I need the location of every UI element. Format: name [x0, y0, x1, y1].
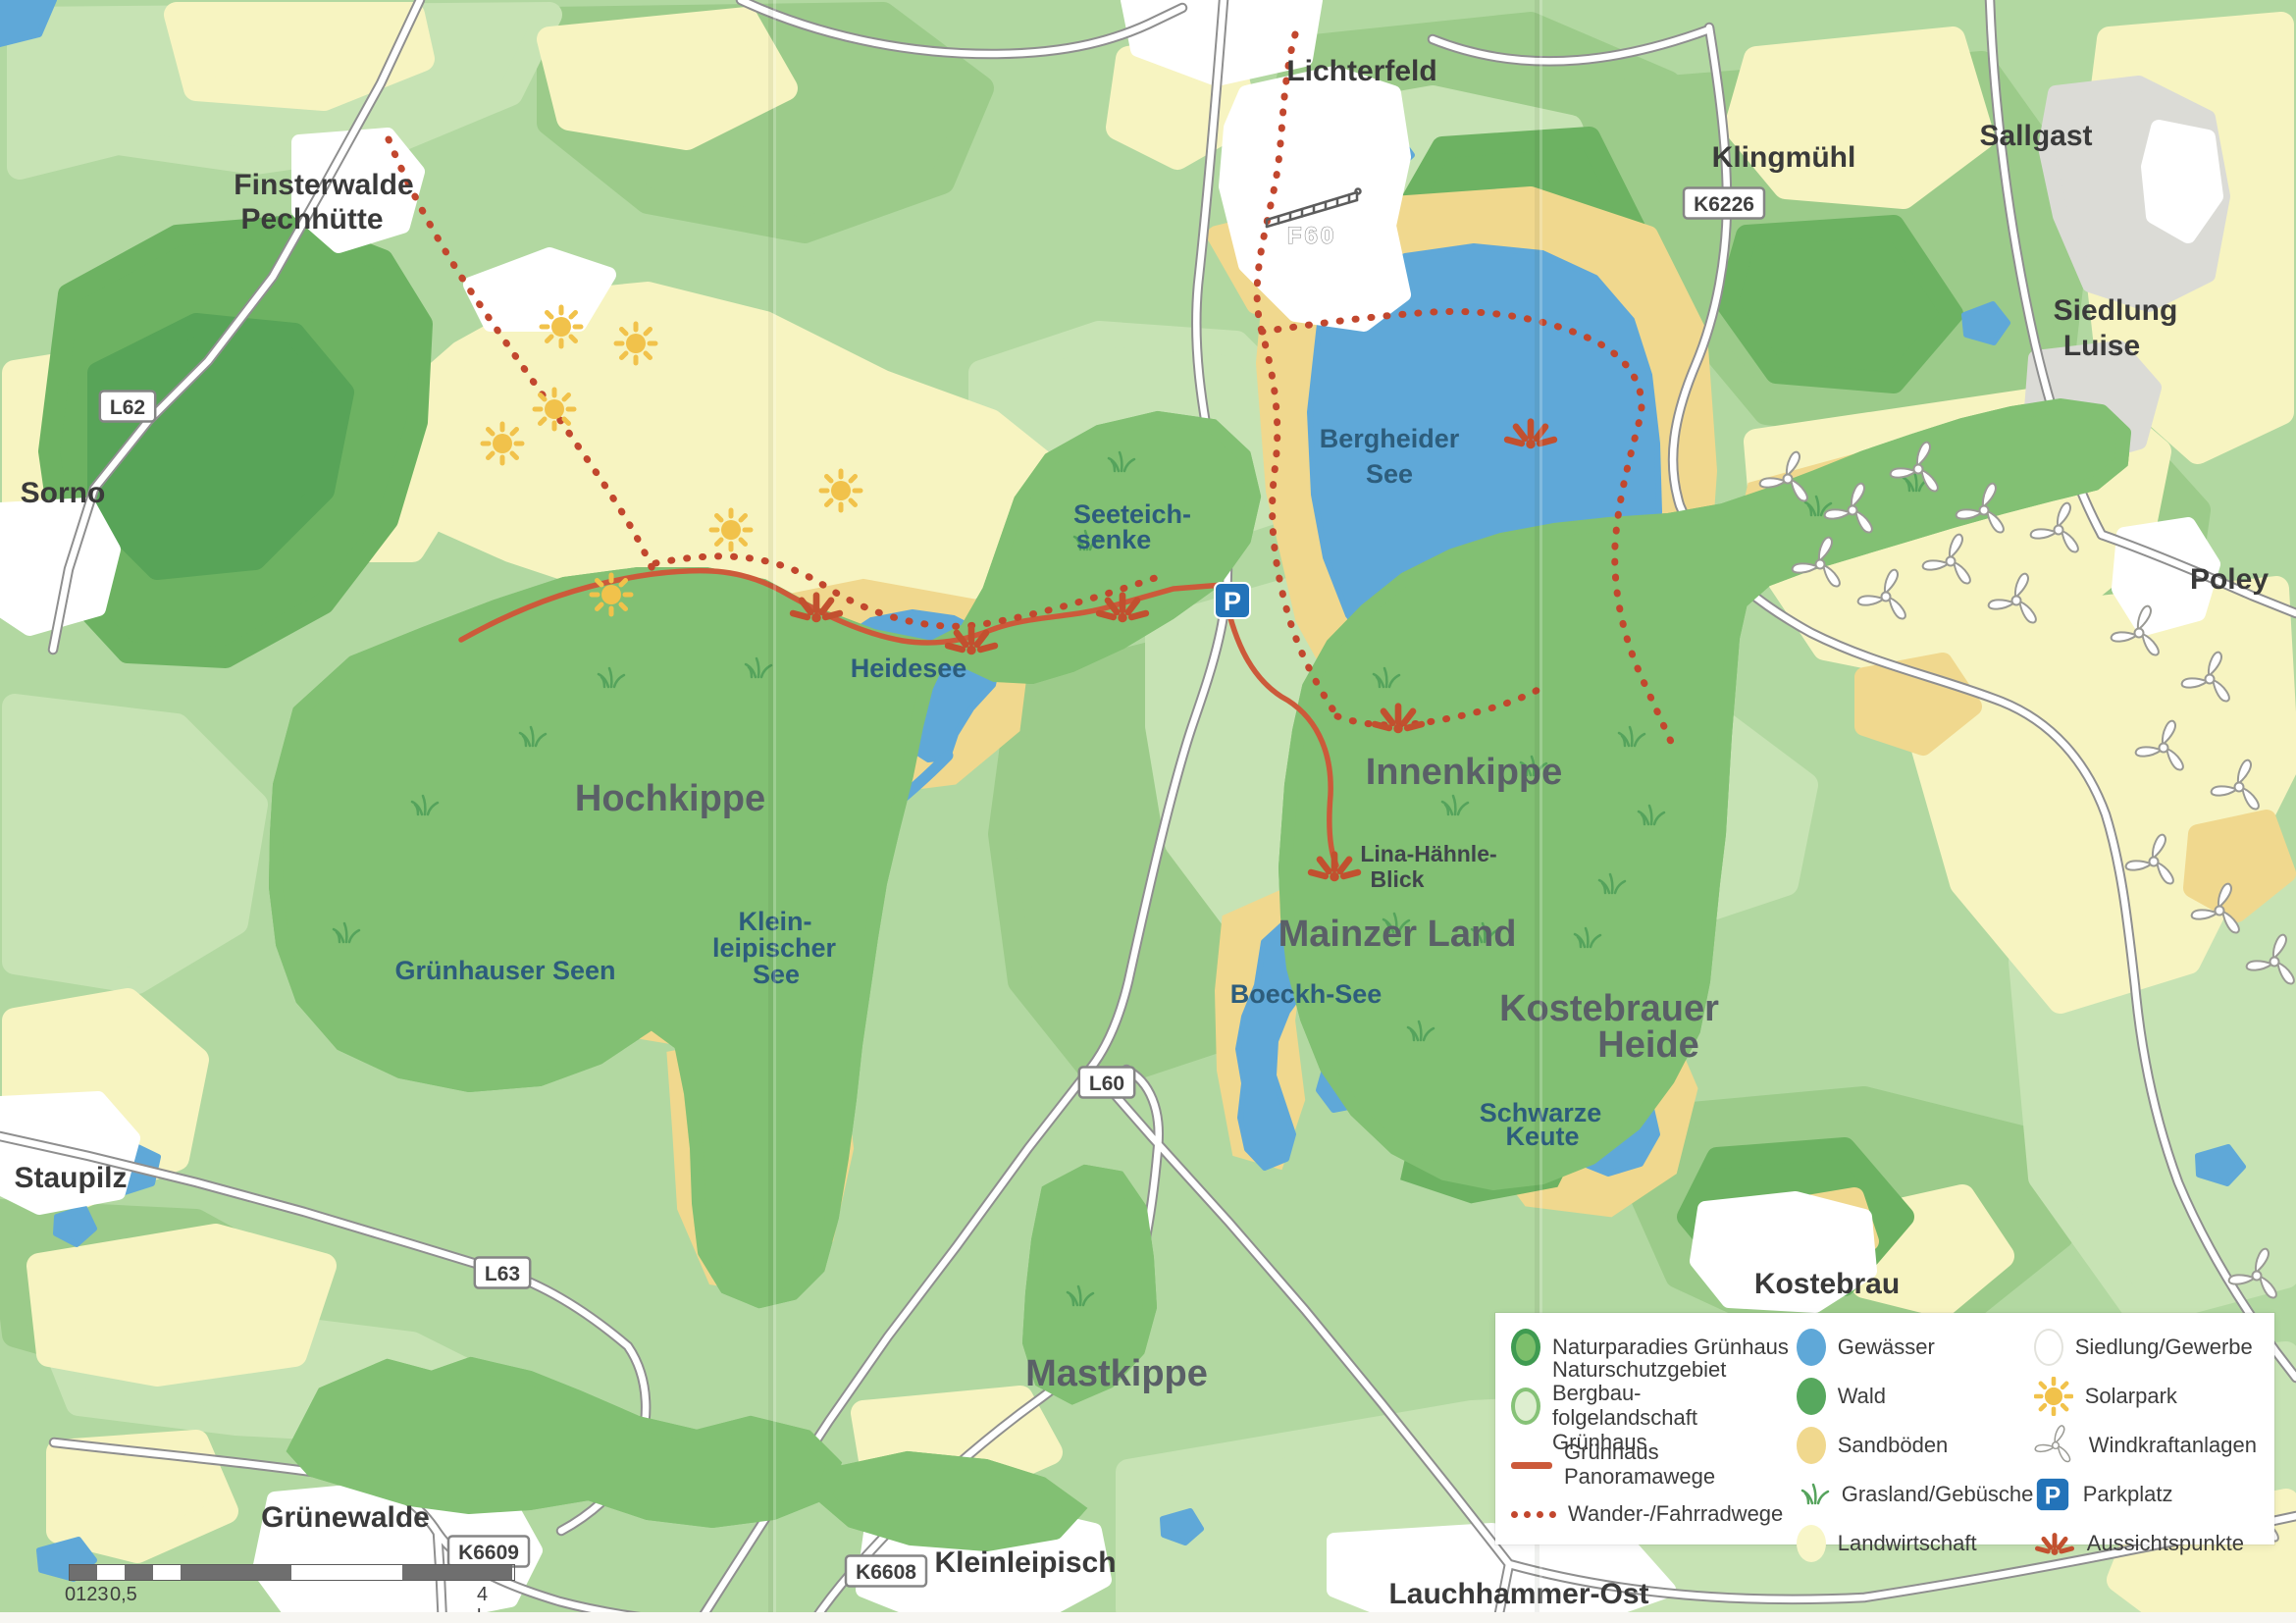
road-badge-l63: L63 [475, 1258, 530, 1288]
road-badge-k6608: K6608 [846, 1556, 926, 1587]
label-town-klingm-hl: Klingmühl [1712, 141, 1856, 174]
label-town-poley: Poley [2190, 563, 2269, 596]
legend-item-landwirtschaft: Landwirtschaft [1797, 1525, 2028, 1562]
label-town-sorno: Sorno [21, 477, 106, 509]
terrain-layer-shape [39, 1236, 324, 1374]
naturparadies-swatch-icon [1511, 1329, 1540, 1366]
map-canvas: PF60 L62K6226L60L63K6609K6608 Finsterwal… [0, 0, 2296, 1623]
parking-icon: P [2034, 1476, 2071, 1513]
legend-item-siedlung: Siedlung/Gewerbe [2034, 1329, 2267, 1366]
solar-park-icon [616, 324, 655, 363]
legend-label: Solarpark [2085, 1385, 2177, 1409]
farmland-swatch-icon [1797, 1525, 1826, 1562]
legend: Naturparadies Grünhaus Naturschutzgebiet… [1495, 1313, 2274, 1544]
label-water-bergheider: Bergheider [1320, 424, 1460, 453]
solar-park-icon [542, 307, 581, 346]
lakes-layer-shape [1964, 304, 2008, 342]
label-poi-blick: Blick [1371, 866, 1425, 892]
label-town-pechh-tte: Pechhütte [240, 203, 383, 236]
legend-item-solarpark: Solarpark [2034, 1378, 2267, 1415]
label-town-siedlung: Siedlung [2054, 294, 2178, 327]
road-badge-k6226: K6226 [1684, 188, 1764, 219]
legend-label: Grasland/Gebüsche [1842, 1483, 2034, 1507]
label-water-boeckh-see: Boeckh-See [1230, 979, 1383, 1009]
label-area-heide: Heide [1597, 1024, 1698, 1066]
road-badge-k6609-shape: K6609 [458, 1542, 519, 1564]
f60-landmark-icon-shape: F60 [1287, 223, 1336, 249]
sand-swatch-icon [1797, 1427, 1826, 1464]
solar-park-icon [592, 575, 631, 614]
label-town-kleinleipisch: Kleinleipisch [934, 1546, 1116, 1579]
solid-route-line-icon [1511, 1462, 1552, 1469]
terrain-layer-shape [549, 20, 785, 137]
scale-label-start: 0123 [65, 1584, 109, 1606]
settlement-layer-shape [2149, 128, 2216, 236]
legend-label: Sandböden [1838, 1434, 1949, 1458]
legend-label: Landwirtschaft [1838, 1532, 1977, 1556]
legend-item-wanderwege: Wander-/Fahrradwege [1511, 1495, 1791, 1533]
grass-icon [1797, 1478, 1830, 1511]
legend-column-1: Naturparadies Grünhaus Naturschutzgebiet… [1511, 1329, 1791, 1533]
scale-segment [181, 1565, 291, 1580]
wind-turbine-icon [2034, 1424, 2077, 1467]
label-area-kostebrauer: Kostebrauer [1499, 988, 1719, 1029]
solar-park-icon [2034, 1377, 2073, 1416]
label-town-sallgast: Sallgast [1979, 120, 2092, 152]
legend-item-gewaesser: Gewässer [1797, 1329, 2028, 1366]
legend-label: Wald [1838, 1385, 1886, 1409]
road-badge-l62-shape: L62 [110, 396, 145, 419]
label-area-innenkippe: Innenkippe [1366, 752, 1563, 793]
viewpoint-icon [2034, 1524, 2075, 1563]
label-water-gr-nhauser-seen: Grünhauser Seen [394, 956, 615, 985]
legend-column-2: Gewässer Wald Sandböden Grasland/Gebüsch… [1797, 1329, 2028, 1533]
label-town-staupilz: Staupilz [14, 1162, 127, 1194]
scale-label-half: 0,5 [110, 1584, 137, 1606]
paper-margin [0, 1612, 2296, 1623]
scale-segment [125, 1565, 153, 1580]
scale-segment [291, 1565, 402, 1580]
settlement-swatch-icon [2034, 1329, 2063, 1366]
road-badge-k6226-shape: K6226 [1694, 193, 1754, 216]
legend-item-parkplatz: P Parkplatz [2034, 1476, 2267, 1513]
road-badge-k6609: K6609 [448, 1537, 529, 1567]
legend-item-aussichtspunkte: Aussichtspunkte [2034, 1525, 2267, 1562]
svg-text:P: P [2045, 1484, 2061, 1510]
label-town-kostebrau: Kostebrau [1754, 1268, 1900, 1300]
scale-segment [402, 1565, 512, 1580]
legend-item-grasland: Grasland/Gebüsche [1797, 1476, 2028, 1513]
road-badge-l60-shape: L60 [1089, 1073, 1124, 1095]
parking-icon-shape: P [1224, 587, 1241, 616]
label-area-mainzer-land: Mainzer Land [1278, 914, 1517, 955]
label-water-senke: senke [1076, 525, 1152, 554]
label-area-mastkippe: Mastkippe [1025, 1353, 1208, 1394]
legend-item-naturschutzgebiet: Naturschutzgebiet Bergbau-folgelandschaf… [1511, 1378, 1791, 1435]
scale-segment [70, 1565, 97, 1580]
solar-park-icon [711, 510, 751, 550]
label-town-lichterfeld: Lichterfeld [1286, 55, 1436, 87]
legend-label: Naturparadies Grünhaus [1552, 1335, 1789, 1360]
road-badge-l60: L60 [1079, 1068, 1134, 1098]
legend-label: Windkraftanlagen [2089, 1434, 2257, 1458]
legend-label: Wander-/Fahrradwege [1568, 1502, 1783, 1527]
label-town-gr-newalde: Grünewalde [261, 1501, 430, 1534]
parking-icon: P [1215, 583, 1250, 618]
label-water-see: See [1366, 459, 1413, 489]
label-town-lauchhammer-ost: Lauchhammer-Ost [1388, 1578, 1648, 1610]
water-swatch-icon [1797, 1329, 1826, 1366]
legend-item-wald: Wald [1797, 1378, 2028, 1415]
label-poi-lina-h-hnle: Lina-Hähnle- [1360, 841, 1496, 866]
paper-crease-layer-shape [768, 0, 773, 1623]
dotted-route-line-icon [1511, 1511, 1556, 1518]
terrain-layer-shape [15, 707, 255, 981]
settlement-layer-shape [471, 255, 608, 324]
legend-label: Grünhaus Panoramawege [1564, 1440, 1791, 1489]
label-water-heidesee: Heidesee [851, 654, 967, 683]
legend-item-windkraft: Windkraftanlagen [2034, 1427, 2267, 1464]
legend-item-panoramawege: Grünhaus Panoramawege [1511, 1446, 1791, 1484]
legend-item-sandboeden: Sandböden [1797, 1427, 2028, 1464]
label-town-finsterwalde: Finsterwalde [234, 169, 413, 201]
solar-park-icon [821, 471, 861, 510]
solar-park-icon [483, 424, 522, 463]
label-town-luise: Luise [2063, 330, 2140, 362]
road-badge-k6608-shape: K6608 [856, 1561, 916, 1584]
terrain-layer-shape [1727, 226, 1953, 383]
reserve-outline-layer-shape [824, 1458, 1077, 1544]
road-badge-l63-shape: L63 [485, 1263, 520, 1285]
road-badge-l62: L62 [100, 392, 155, 422]
solar-park-icon [535, 390, 574, 429]
forest-swatch-icon [1797, 1378, 1826, 1415]
legend-label: Parkplatz [2083, 1483, 2173, 1507]
legend-label: Siedlung/Gewerbe [2075, 1335, 2253, 1360]
legend-label: Gewässer [1838, 1335, 1935, 1360]
legend-label: Aussichtspunkte [2087, 1532, 2244, 1556]
naturschutzgebiet-swatch-icon [1511, 1387, 1540, 1425]
scale-bar-segments [69, 1564, 515, 1581]
scale-bar: 0123 0,5 4 km [69, 1564, 515, 1581]
label-area-hochkippe: Hochkippe [575, 778, 765, 819]
scale-segment [97, 1565, 125, 1580]
scale-segment [153, 1565, 181, 1580]
paper-crease-layer-shape [773, 0, 776, 1623]
legend-column-3: Siedlung/Gewerbe Solarpark Windkraftanla… [2034, 1329, 2267, 1533]
